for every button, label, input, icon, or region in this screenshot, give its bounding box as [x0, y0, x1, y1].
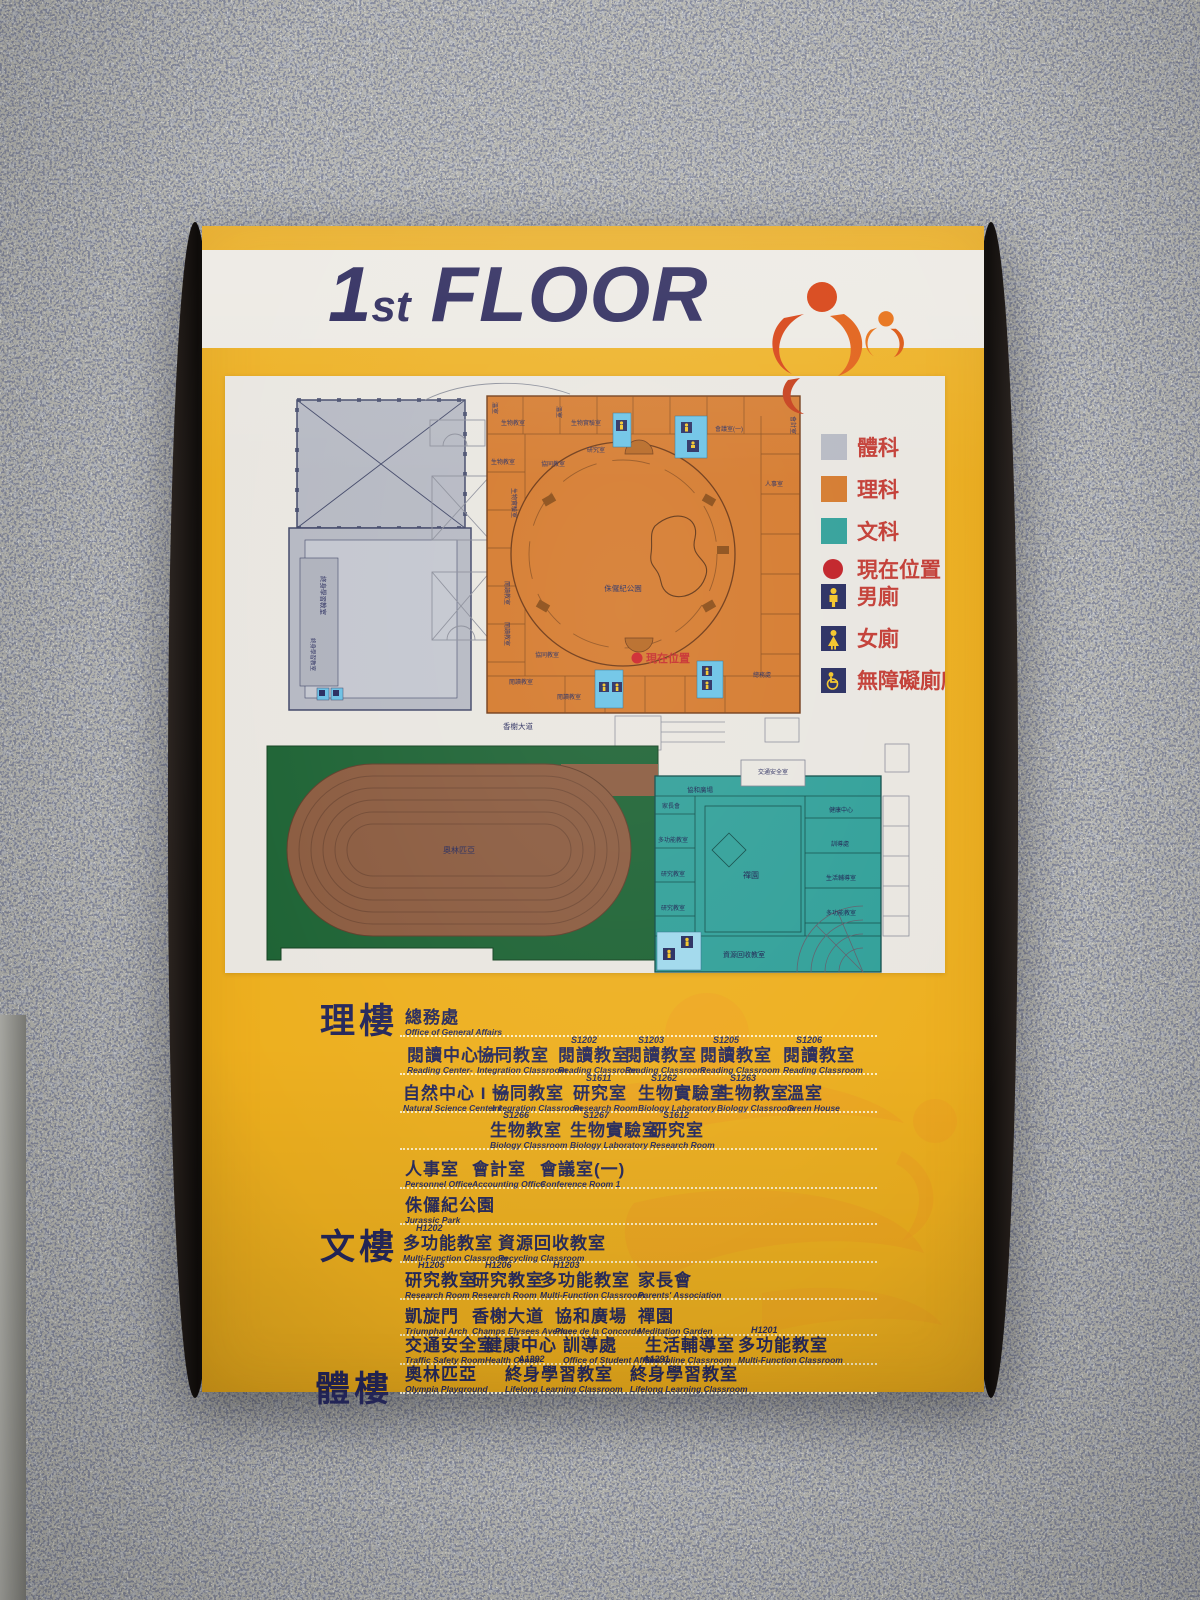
- entry-zh: 終身學習教室: [505, 1365, 623, 1384]
- directory-section-header: 文樓: [320, 1219, 398, 1270]
- directory-entry: H1205研究教室Research Room: [405, 1260, 477, 1300]
- svg-text:現在位置: 現在位置: [857, 558, 941, 582]
- svg-text:交通安全室: 交通安全室: [758, 768, 788, 776]
- entry-zh: 閱讀教室: [700, 1046, 780, 1065]
- directory-row: 人事室Personnel Office會計室Accounting Office會…: [400, 1149, 877, 1189]
- directory-entry: 奧林匹亞Olympia Playground: [405, 1354, 488, 1394]
- entry-zh: 協和廣場: [555, 1307, 641, 1326]
- svg-text:總務處: 總務處: [753, 671, 771, 679]
- directory-section-header: 理樓: [320, 993, 398, 1044]
- svg-text:研究教室: 研究教室: [661, 904, 685, 912]
- svg-text:會議室(一): 會議室(一): [715, 425, 743, 433]
- entry-en: Lifelong Learning Classroom: [505, 1384, 623, 1394]
- legend: 體科 理科 文科 現在位置 男廁 女廁: [821, 434, 945, 693]
- svg-text:多功能教室: 多功能教室: [658, 836, 688, 844]
- svg-text:研究室: 研究室: [587, 446, 605, 454]
- entry-code: S1266: [503, 1110, 567, 1121]
- entry-zh: 生物教室: [717, 1084, 794, 1103]
- directory-row: S1266生物教室Biology ClassroomS1267生物實驗室Biol…: [400, 1110, 877, 1150]
- side-ramp-outline: [883, 744, 909, 936]
- svg-text:協同教室: 協同教室: [541, 460, 565, 468]
- sign-board: 1stFLOOR: [202, 226, 984, 1392]
- directory-entry: 溫室Green House: [787, 1073, 840, 1113]
- entry-code: S1203: [638, 1035, 705, 1046]
- floor-map-panel: 終身學習教室 終身學習教室: [225, 376, 945, 973]
- entry-code: S1612: [663, 1110, 715, 1121]
- directory-entry: 會計室Accounting Office: [472, 1149, 545, 1189]
- svg-text:生物教室: 生物教室: [501, 419, 525, 427]
- entry-code: [651, 1260, 721, 1271]
- science-building: [487, 396, 800, 713]
- entry-zh: 協同教室: [477, 1046, 567, 1065]
- entry-zh: 研究教室: [472, 1271, 544, 1290]
- svg-text:溫室: 溫室: [555, 406, 563, 418]
- entry-zh: 生活輔導室: [645, 1336, 735, 1355]
- field-label: 奧林匹亞: [443, 845, 475, 855]
- svg-text:文科: 文科: [857, 520, 899, 544]
- directory-entry: 協同教室Integration Classroom: [492, 1073, 582, 1113]
- svg-text:閱讀教室: 閱讀教室: [503, 622, 511, 646]
- sports-field: 奧林匹亞: [267, 746, 658, 960]
- entry-code: S1263: [730, 1073, 794, 1084]
- floor-map: 終身學習教室 終身學習教室: [225, 376, 945, 973]
- wall-corner-trim: [0, 1015, 26, 1600]
- directory-row: 總務處Office of General Affairs: [400, 997, 877, 1037]
- entrance-plaza-outline: [615, 716, 799, 750]
- entry-zh: 終身學習教室: [630, 1365, 748, 1384]
- entry-code: [418, 1149, 472, 1160]
- humanities-building: [655, 744, 909, 972]
- title-number: 1: [328, 250, 371, 338]
- small-runner-icon: [865, 311, 904, 357]
- entry-zh: 閱讀教室: [783, 1046, 863, 1065]
- entry-code: H1206: [485, 1260, 544, 1271]
- map-label: 終身學習教室: [319, 576, 328, 616]
- svg-text:閱讀教室: 閱讀教室: [557, 693, 581, 701]
- directory-entry: S1611研究室Research Room: [573, 1073, 638, 1113]
- entry-zh: 多功能教室: [540, 1271, 645, 1290]
- entry-code: [418, 997, 502, 1008]
- entry-code: [568, 1296, 641, 1307]
- directory-entry: S1612研究室Research Room: [650, 1110, 715, 1150]
- entry-zh: 凱旋門: [405, 1307, 467, 1326]
- entry-code: H1203: [553, 1260, 645, 1271]
- legend-swatch-pe: [821, 434, 847, 460]
- entry-zh: 會計室: [472, 1160, 545, 1179]
- svg-text:家長會: 家長會: [662, 802, 680, 810]
- directory-entry: 人事室Personnel Office: [405, 1149, 472, 1189]
- entry-zh: 家長會: [638, 1271, 721, 1290]
- entry-code: [490, 1035, 567, 1046]
- current-location-dot: [823, 559, 843, 579]
- entry-code: S1206: [796, 1035, 863, 1046]
- map-label: 終身學習教室: [309, 638, 317, 672]
- svg-text:理科: 理科: [857, 478, 899, 502]
- entry-zh: 健康中心: [485, 1336, 557, 1355]
- entry-zh: 奧林匹亞: [405, 1365, 488, 1384]
- svg-text:生物教室: 生物教室: [491, 458, 515, 466]
- svg-text:生物實驗室: 生物實驗室: [510, 488, 518, 518]
- entry-code: [418, 1325, 495, 1336]
- svg-text:生活輔導室: 生活輔導室: [826, 874, 856, 882]
- directory-entry: 侏儸紀公園Jurassic Park: [405, 1185, 495, 1225]
- entry-zh: 溫室: [787, 1084, 840, 1103]
- entry-code: S1611: [586, 1073, 638, 1084]
- entry-zh: 多功能教室: [403, 1234, 508, 1253]
- directory-entry: 資源回收教室Recycling Classroom: [498, 1223, 606, 1263]
- entry-code: S1205: [713, 1035, 780, 1046]
- running-figures-logo: [726, 276, 938, 418]
- directory-entry: S1266生物教室Biology Classroom: [490, 1110, 567, 1150]
- road-label: 香榭大道: [503, 721, 533, 731]
- entry-en: Olympia Playground: [405, 1384, 488, 1394]
- svg-text:女廁: 女廁: [857, 627, 899, 651]
- svg-text:會計室: 會計室: [789, 416, 797, 434]
- svg-text:協和廣場: 協和廣場: [687, 785, 714, 794]
- entry-zh: 禪園: [638, 1307, 713, 1326]
- svg-text:健康中心: 健康中心: [829, 806, 853, 814]
- entry-code: [418, 1296, 467, 1307]
- directory-entry: S1203閱讀教室Reading Classroom: [625, 1035, 705, 1075]
- svg-text:溫室: 溫室: [491, 402, 499, 414]
- directory-row: 侏儸紀公園Jurassic Park: [400, 1185, 877, 1225]
- svg-text:無障礙廁所: 無障礙廁所: [857, 669, 945, 693]
- entry-code: [553, 1149, 625, 1160]
- directory-section-header: 體樓: [315, 1361, 393, 1412]
- directory-entry: 總務處Office of General Affairs: [405, 997, 502, 1037]
- svg-text:多功能教室: 多功能教室: [826, 909, 856, 917]
- entry-code: [511, 1223, 606, 1234]
- svg-text:禪園: 禪園: [743, 870, 759, 880]
- directory-entry: H1206研究教室Research Room: [472, 1260, 544, 1300]
- entry-code: [418, 1185, 495, 1196]
- entry-code: H1201: [751, 1325, 843, 1336]
- entry-zh: 生物教室: [490, 1121, 567, 1140]
- photo-of-floor-sign: 1stFLOOR: [0, 0, 1200, 1600]
- svg-text:生物實驗室: 生物實驗室: [571, 419, 601, 427]
- legend-swatch-humanities: [821, 518, 847, 544]
- svg-text:資源回收教室: 資源回收教室: [723, 950, 765, 959]
- entry-zh: 侏儸紀公園: [405, 1196, 495, 1215]
- svg-text:訓導處: 訓導處: [831, 840, 849, 848]
- entry-zh: 研究室: [650, 1121, 715, 1140]
- entry-zh: 人事室: [405, 1160, 472, 1179]
- entry-code: H1205: [418, 1260, 477, 1271]
- title-ordinal: st: [371, 282, 410, 331]
- entry-code: A1292: [518, 1354, 623, 1365]
- title-word: FLOOR: [431, 250, 709, 338]
- entry-zh: 研究室: [573, 1084, 638, 1103]
- svg-text:男廁: 男廁: [857, 585, 899, 609]
- directory-entry: S1206閱讀教室Reading Classroom: [783, 1035, 863, 1075]
- entry-code: [485, 1149, 545, 1160]
- entry-zh: 總務處: [405, 1008, 502, 1027]
- svg-text:協同教室: 協同教室: [535, 651, 559, 659]
- svg-text:研究教室: 研究教室: [661, 870, 685, 878]
- entry-zh: 研究教室: [405, 1271, 477, 1290]
- directory-entry: S1263生物教室Biology Classroom: [717, 1073, 794, 1113]
- entry-code: S1267: [583, 1110, 660, 1121]
- directory-entry: S1262生物實驗室Biology Laboratory: [638, 1073, 728, 1113]
- entry-zh: 協同教室: [492, 1084, 582, 1103]
- entry-code: [800, 1073, 840, 1084]
- svg-text:閱讀教室: 閱讀教室: [503, 581, 511, 605]
- entry-zh: 生物實驗室: [638, 1084, 728, 1103]
- entry-code: [658, 1325, 735, 1336]
- entry-en: Lifelong Learning Classroom: [630, 1384, 748, 1394]
- svg-text:體科: 體科: [857, 436, 899, 460]
- page-title: 1stFLOOR: [328, 249, 708, 340]
- entry-code: H1202: [416, 1223, 508, 1234]
- directory-entry: A1292終身學習教室Lifelong Learning Classroom: [505, 1354, 623, 1394]
- directory-row: H1202多功能教室Multi-Function Classroom資源回收教室…: [400, 1223, 877, 1263]
- entry-zh: 會議室(一): [540, 1160, 625, 1179]
- svg-text:閱讀教室: 閱讀教室: [509, 678, 533, 686]
- directory-entry: S1267生物實驗室Biology Laboratory: [570, 1110, 660, 1150]
- entry-zh: 資源回收教室: [498, 1234, 606, 1253]
- pe-building: [289, 400, 471, 710]
- room-directory: 理樓總務處Office of General Affairs閱讀中心 一Read…: [202, 973, 984, 1392]
- floor-directory-sign: 1stFLOOR: [168, 222, 1018, 1398]
- directory-entry: A1291終身學習教室Lifelong Learning Classroom: [630, 1354, 748, 1394]
- svg-text:人事室: 人事室: [765, 480, 783, 488]
- entry-code: [418, 1354, 488, 1365]
- directory-entry: 協同教室Integration Classroom: [477, 1035, 567, 1075]
- directory-row: 自然中心 I 一Natural Science Center I協同教室Inte…: [400, 1073, 877, 1113]
- entry-code: [498, 1325, 557, 1336]
- directory-row: 奧林匹亞Olympia PlaygroundA1292終身學習教室Lifelon…: [400, 1354, 877, 1394]
- legend-swatch-science: [821, 476, 847, 502]
- entry-zh: 生物實驗室: [570, 1121, 660, 1140]
- entry-code: [651, 1296, 713, 1307]
- entry-zh: 多功能教室: [738, 1336, 843, 1355]
- directory-entry: H1203多功能教室Multi-Function Classroom: [540, 1260, 645, 1300]
- entry-code: A1291: [643, 1354, 748, 1365]
- directory-entry: H1202多功能教室Multi-Function Classroom: [403, 1223, 508, 1263]
- big-runner-icon: [772, 282, 862, 414]
- directory-entry: 會議室(一)Conference Room 1: [540, 1149, 625, 1189]
- svg-text:現在位置: 現在位置: [646, 651, 690, 665]
- directory-entry: 家長會Parents' Association: [638, 1260, 721, 1300]
- entry-zh: 交通安全室: [405, 1336, 495, 1355]
- directory-entry: S1205閱讀教室Reading Classroom: [700, 1035, 780, 1075]
- directory-row: 閱讀中心 一Reading Center-協同教室Integration Cla…: [400, 1035, 877, 1075]
- svg-text:侏儸紀公園: 侏儸紀公園: [604, 583, 642, 593]
- entry-zh: 閱讀教室: [625, 1046, 705, 1065]
- directory-row: H1205研究教室Research RoomH1206研究教室Research …: [400, 1260, 877, 1300]
- entry-code: [505, 1073, 582, 1084]
